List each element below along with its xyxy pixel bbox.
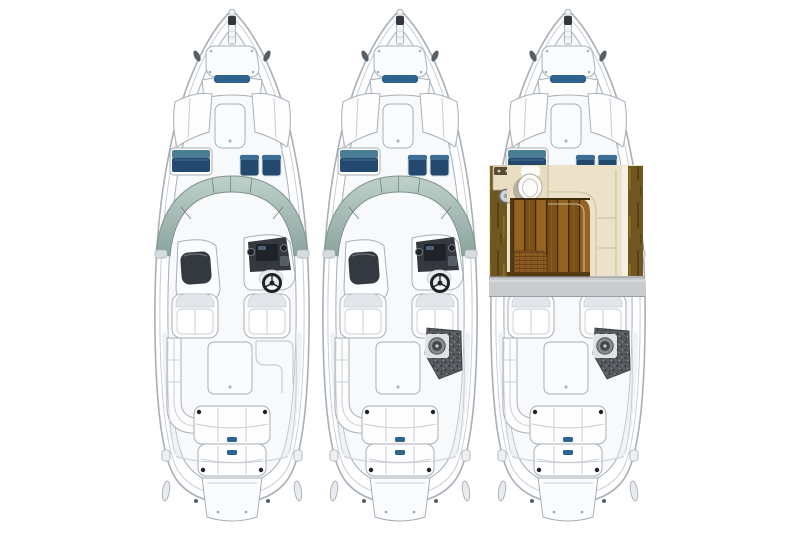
- deckplan-illustration: [0, 0, 800, 533]
- boat-1-standard: [155, 9, 309, 521]
- boat-2-aft-pad: [323, 9, 477, 521]
- boat-deckplan-canvas: [0, 0, 800, 533]
- boat-3-cabin-cutaway: [489, 9, 645, 521]
